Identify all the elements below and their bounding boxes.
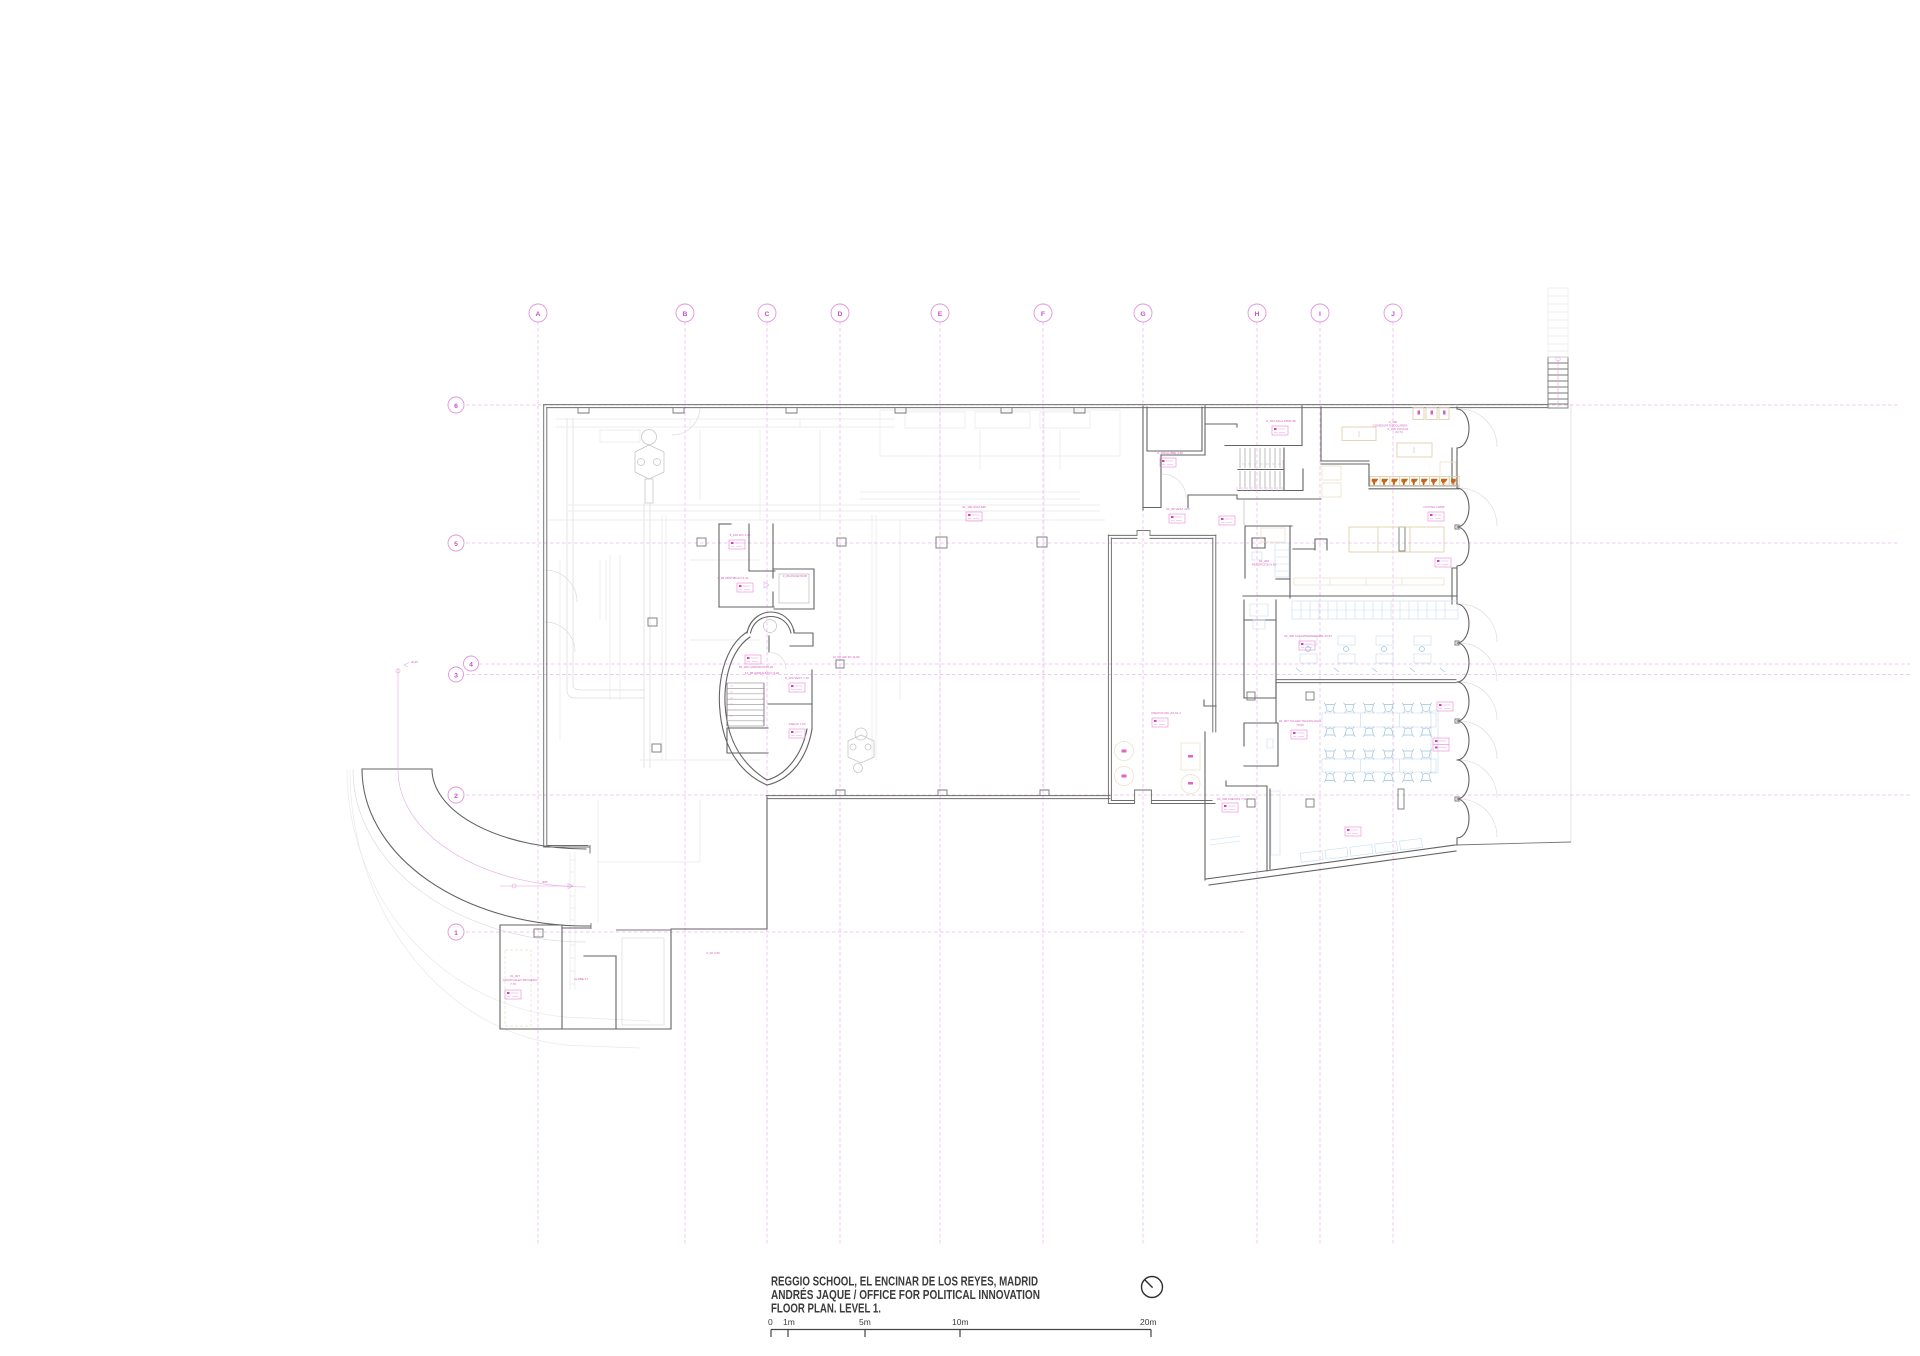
svg-text:I: I — [1319, 311, 1321, 318]
svg-text:J: J — [1391, 311, 1395, 318]
svg-text:6: 6 — [454, 403, 458, 410]
svg-text:20m: 20m — [1140, 1317, 1157, 1327]
svg-text:0_100 ALJIBE 4,35: 0_100 ALJIBE 4,35 — [1157, 451, 1183, 455]
svg-text:+8,35: +8,35 — [410, 660, 418, 664]
svg-text:ANEXOS WC-AS 61,1: ANEXOS WC-AS 61,1 — [1151, 711, 1181, 715]
svg-text:ALJIBE 17: ALJIBE 17 — [574, 977, 589, 981]
svg-text:12_08 HID 3N 11,80: 12_08 HID 3N 11,80 — [832, 655, 859, 659]
svg-text:E: E — [938, 311, 943, 318]
svg-text:B: B — [683, 311, 688, 318]
svg-text:F: F — [1041, 311, 1045, 318]
svg-text:3: 3 — [454, 673, 458, 680]
svg-text:0_80 ASCENSOR: 0_80 ASCENSOR — [783, 574, 808, 578]
svg-text:23,74: 23,74 — [1395, 430, 1403, 434]
svg-text:6_08 VESTIBULO 3,31: 6_08 VESTIBULO 3,31 — [717, 576, 748, 580]
svg-text:0: 0 — [768, 1317, 773, 1327]
svg-text:02_305 AULA POLIVALENTE 40,87: 02_305 AULA POLIVALENTE 40,87 — [1284, 634, 1332, 638]
svg-text:12_88 HIDRAULICO 9,20: 12_88 HIDRAULICO 9,20 — [745, 671, 780, 675]
svg-text:ASEOS 7,02: ASEOS 7,02 — [788, 722, 805, 726]
svg-text:5: 5 — [454, 541, 458, 548]
svg-text:8_100 VEST 7,10: 8_100 VEST 7,10 — [785, 676, 809, 680]
svg-text:5m: 5m — [859, 1317, 871, 1327]
svg-text:70,05: 70,05 — [1296, 723, 1304, 727]
svg-text:2: 2 — [454, 793, 458, 800]
svg-text:COCINA COMP: COCINA COMP — [1423, 505, 1444, 509]
svg-text:1: 1 — [454, 930, 458, 937]
svg-text:10m: 10m — [952, 1317, 969, 1327]
svg-text:H: H — [1255, 311, 1260, 318]
svg-text:0_300 SALA PRIM 98: 0_300 SALA PRIM 98 — [1266, 419, 1296, 423]
svg-text:1m: 1m — [783, 1317, 795, 1327]
svg-text:8_100 WC 4,35: 8_100 WC 4,35 — [730, 533, 751, 537]
svg-text:0_90 3,60: 0_90 3,60 — [706, 951, 720, 955]
svg-text:02_80 VEST 11,2: 02_80 VEST 11,2 — [1166, 507, 1190, 511]
svg-text:GRUPO ELECTROGENO: GRUPO ELECTROGENO — [503, 978, 539, 982]
svg-text:FLOOR PLAN. LEVEL 1.: FLOOR PLAN. LEVEL 1. — [771, 1301, 881, 1316]
svg-text:C: C — [765, 311, 770, 318]
svg-text:4: 4 — [469, 662, 473, 669]
svg-text:A: A — [536, 311, 541, 318]
svg-text:7,70: 7,70 — [510, 982, 516, 986]
svg-text:G: G — [1140, 311, 1145, 318]
svg-text:RECEPCION 9,60: RECEPCION 9,60 — [1252, 563, 1277, 567]
svg-text:01_100 SUM 485: 01_100 SUM 485 — [962, 505, 986, 509]
svg-text:895: 895 — [542, 880, 547, 884]
svg-text:02_200 HORMIGON 8,20: 02_200 HORMIGON 8,20 — [739, 665, 774, 669]
svg-text:02_300 ANEXOS 7,00: 02_300 ANEXOS 7,00 — [1217, 797, 1247, 801]
svg-text:D: D — [838, 311, 843, 318]
